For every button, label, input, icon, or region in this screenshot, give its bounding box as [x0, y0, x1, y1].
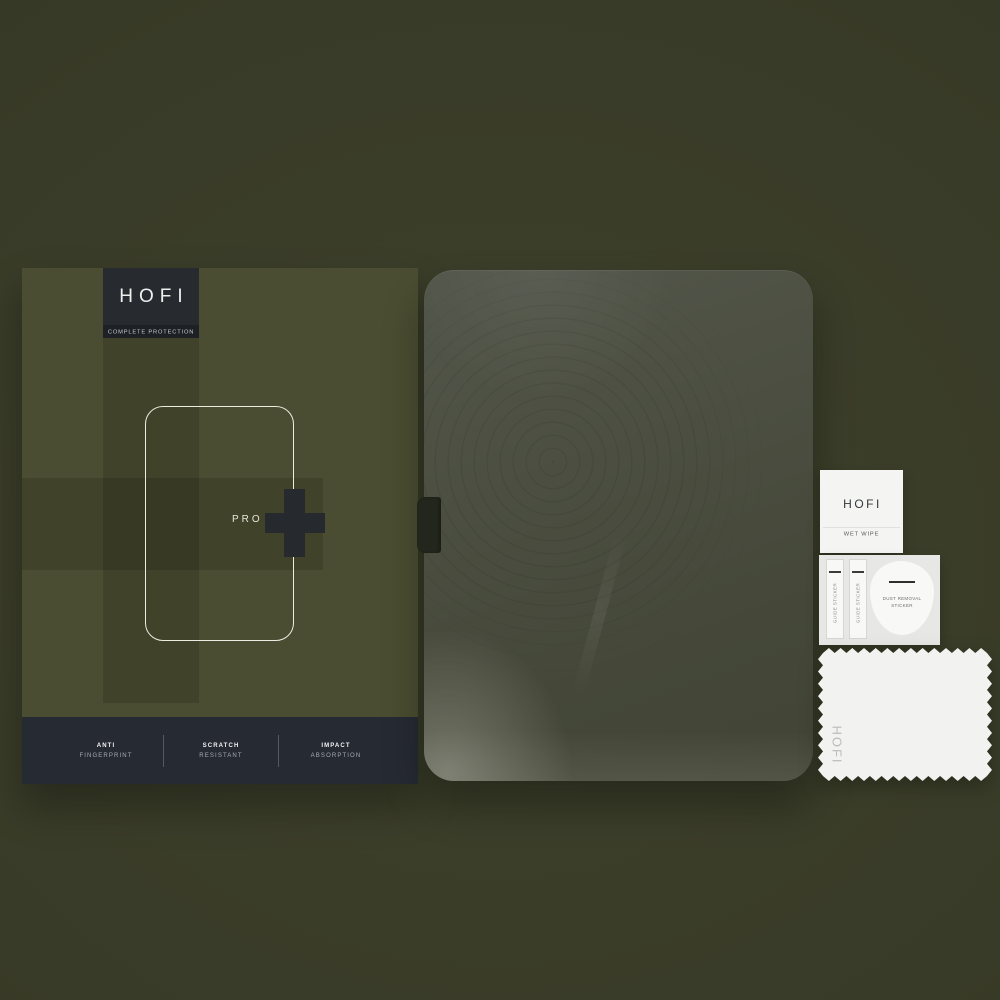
screen-protector-glass [424, 270, 813, 781]
glass-sheen [424, 270, 813, 781]
sticker-tip-mark [829, 571, 841, 573]
sachet-crease [823, 527, 900, 528]
hofi-logo: HOFI [830, 725, 845, 764]
hofi-logo: HOFI [113, 286, 188, 308]
feature-line2: RESISTANT [166, 751, 276, 761]
feature-line1: SCRATCH [166, 741, 276, 751]
feature-scratch-resistant: SCRATCH RESISTANT [164, 717, 278, 784]
guide-sticker-label: GUIDE STICKER [833, 583, 838, 623]
tagline-strip: COMPLETE PROTECTION [103, 325, 199, 338]
feature-line1: ANTI [51, 741, 161, 751]
sticker-sheet: GUIDE STICKER GUIDE STICKER DUST REMOVAL… [819, 555, 940, 645]
feature-anti-fingerprint: ANTI FINGERPRINT [49, 717, 163, 784]
retail-box: HOFI COMPLETE PROTECTION PRO ANTI FINGER… [22, 268, 418, 784]
plus-icon-horizontal-arm [265, 513, 325, 533]
feature-line1: IMPACT [281, 741, 391, 751]
feature-line2: FINGERPRINT [51, 751, 161, 761]
brand-logo-block: HOFI [103, 268, 199, 325]
feature-line2: ABSORPTION [281, 751, 391, 761]
sticker-tip-mark [852, 571, 864, 573]
wet-wipe-sachet: HOFI WET WIPE [820, 470, 903, 553]
model-label: PRO [232, 514, 263, 525]
hofi-logo: HOFI [820, 497, 903, 511]
dust-removal-label: DUST REMOVAL STICKER [880, 596, 925, 610]
guide-sticker-label: GUIDE STICKER [856, 583, 861, 623]
guide-sticker-strip: GUIDE STICKER [849, 559, 867, 639]
product-photo-scene: HOFI COMPLETE PROTECTION PRO ANTI FINGER… [0, 0, 1000, 1000]
pull-tab [417, 497, 441, 553]
guide-sticker-strip: GUIDE STICKER [826, 559, 844, 639]
features-bar: ANTI FINGERPRINT SCRATCH RESISTANT IMPAC… [22, 717, 418, 784]
wet-wipe-label: WET WIPE [840, 531, 883, 537]
feature-impact-absorption: IMPACT ABSORPTION [279, 717, 393, 784]
microfiber-cloth: HOFI [818, 648, 992, 781]
tagline-text: COMPLETE PROTECTION [108, 328, 194, 334]
dust-removal-sticker: DUST REMOVAL STICKER [870, 561, 934, 635]
sticker-tip-mark [889, 581, 915, 583]
